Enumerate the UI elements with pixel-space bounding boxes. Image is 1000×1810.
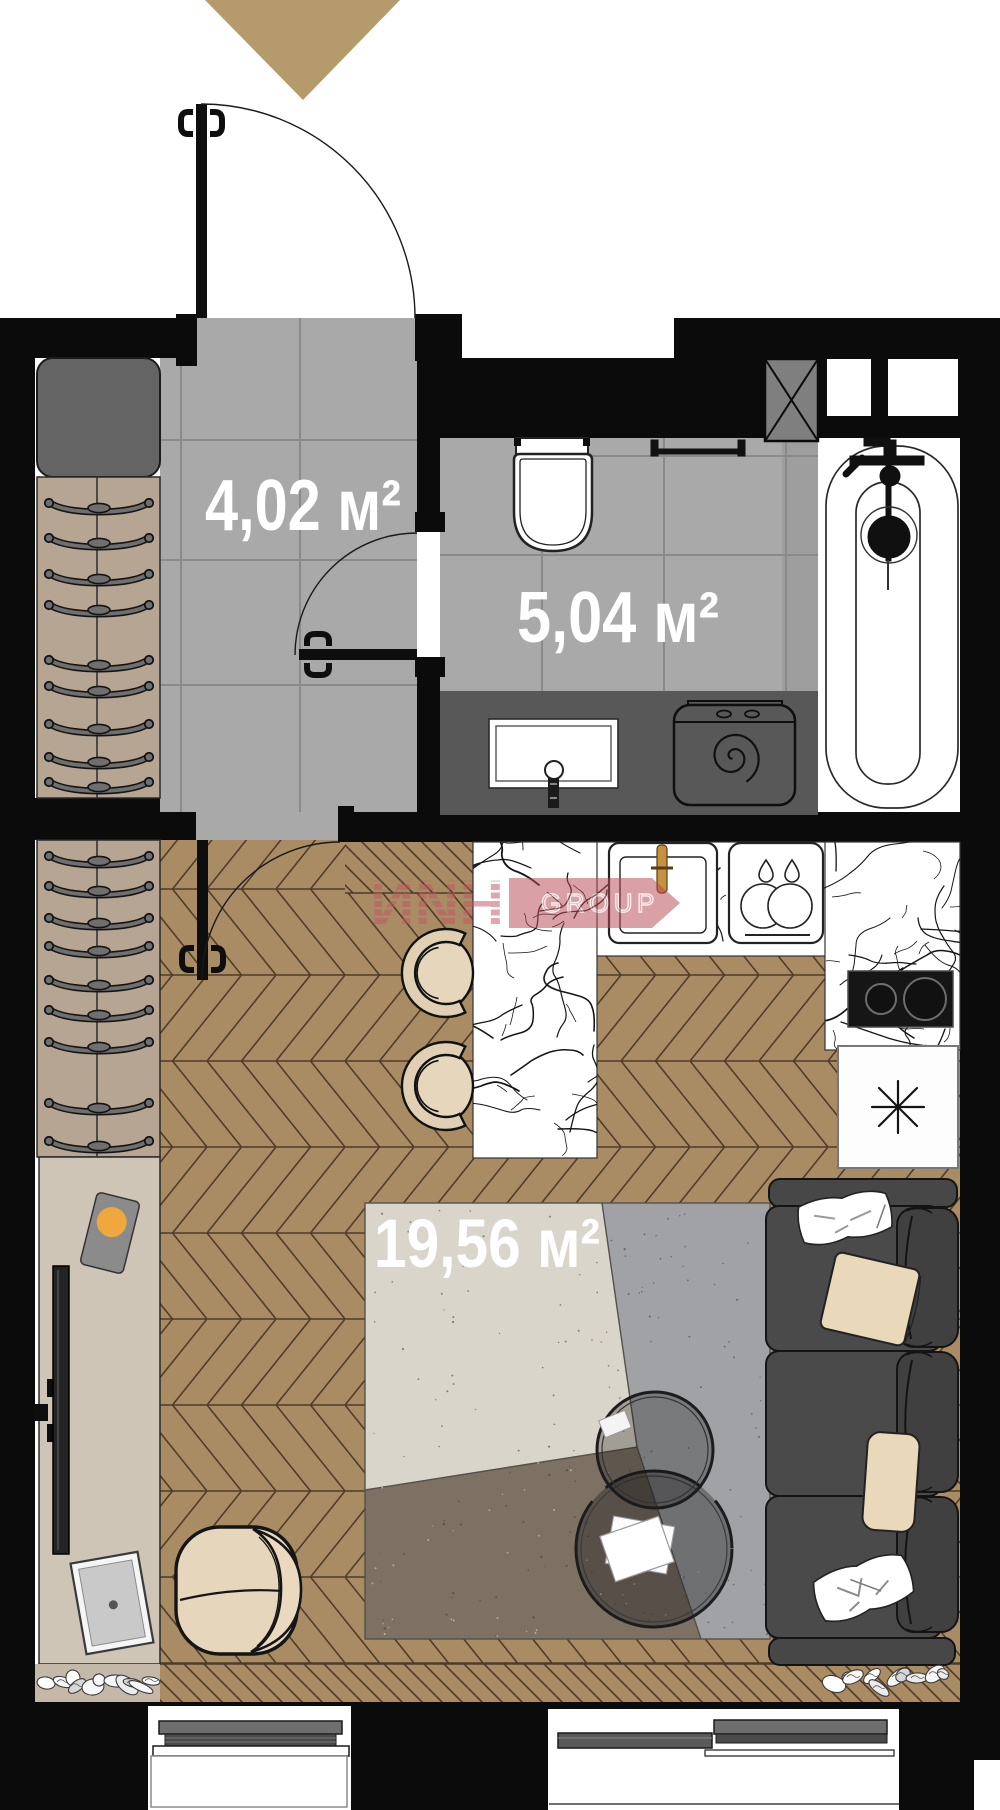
svg-text:19,56 м²: 19,56 м² <box>374 1205 600 1282</box>
svg-text:5,04 м²: 5,04 м² <box>517 578 719 658</box>
svg-text:GROUP: GROUP <box>541 888 659 918</box>
svg-text:ИNH: ИNH <box>370 866 504 940</box>
svg-text:4,02 м²: 4,02 м² <box>205 466 401 546</box>
